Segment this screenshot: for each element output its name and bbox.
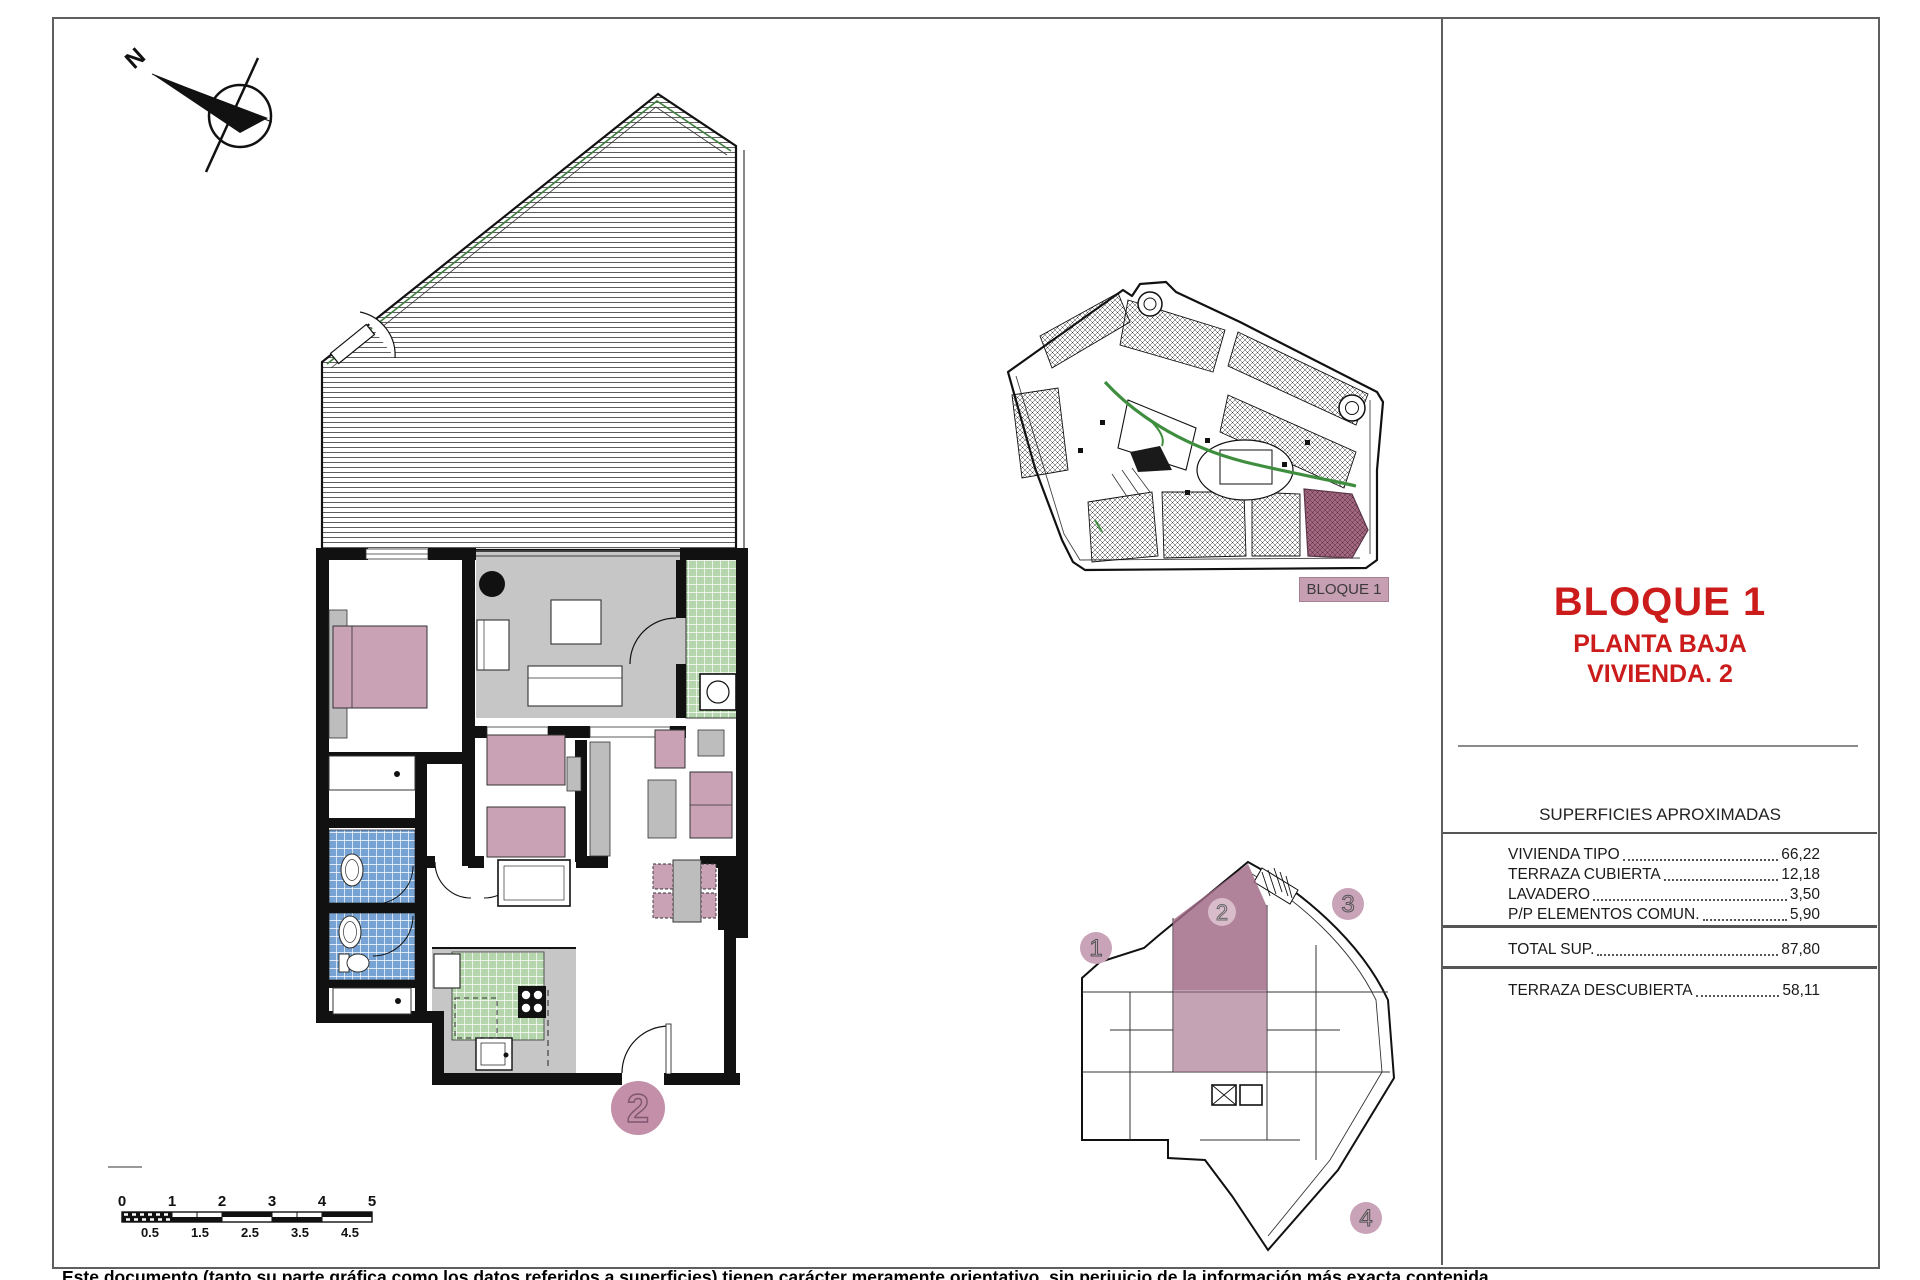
row-label: LAVADERO [1508,886,1590,904]
table-terrace-row: TERRAZA DESCUBIERTA 58,11 [1508,982,1820,1000]
sheet-subtitle-unit: VIVIENDA. 2 [1443,660,1877,689]
drawing-sheet: N [0,0,1920,1280]
leader-dots [1664,879,1778,881]
table-row: LAVADERO 3,50 [1508,886,1820,904]
total-label: TOTAL SUP. [1508,941,1594,959]
table-row: TERRAZA CUBIERTA 12,18 [1508,866,1820,884]
table-rule-bottom [1443,966,1877,969]
terrace-value: 58,11 [1782,982,1820,1000]
site-block-label: BLOQUE 1 [1299,577,1389,602]
row-value: 3,50 [1790,886,1820,904]
leader-dots [1696,995,1780,997]
row-label: TERRAZA CUBIERTA [1508,866,1661,884]
footer-disclaimer: Este documento (tanto su parte gráfica c… [62,1267,1862,1280]
sheet-subtitle-floor: PLANTA BAJA [1443,630,1877,659]
row-label: P/P ELEMENTOS COMUN. [1508,906,1700,924]
leader-dots [1593,899,1787,901]
row-value: 66,22 [1781,846,1820,864]
leader-dots [1597,954,1778,956]
terrace-label: TERRAZA DESCUBIERTA [1508,982,1693,1000]
table-row: P/P ELEMENTOS COMUN. 5,90 [1508,906,1820,924]
row-label: VIVIENDA TIPO [1508,846,1620,864]
leader-dots [1623,859,1779,861]
areas-table-header: SUPERFICIES APROXIMADAS [1443,805,1877,825]
table-rule-top [1443,832,1877,834]
leader-dots [1703,919,1787,921]
row-value: 12,18 [1781,866,1820,884]
row-value: 5,90 [1790,906,1820,924]
total-value: 87,80 [1781,941,1820,959]
sheet-title: BLOQUE 1 [1443,580,1877,625]
table-row: VIVIENDA TIPO 66,22 [1508,846,1820,864]
panel-rule [1458,745,1858,747]
table-total-row: TOTAL SUP. 87,80 [1508,941,1820,959]
table-rule-mid [1443,925,1877,928]
